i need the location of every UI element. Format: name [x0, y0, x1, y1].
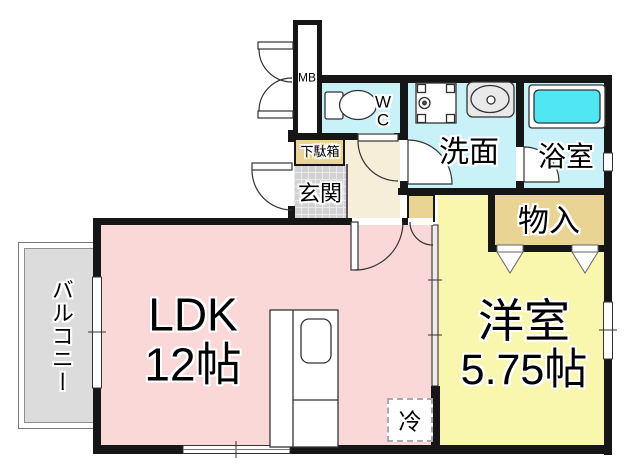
- toilet-label: WC: [374, 94, 392, 131]
- mb-door-leaf-top: [258, 42, 293, 49]
- front-door-leaf: [252, 163, 292, 170]
- bathroom-window: [604, 153, 613, 171]
- small-closet-box: [407, 194, 435, 222]
- ldk-name: LDK: [144, 290, 241, 340]
- refrigerator-label: 冷: [399, 410, 422, 435]
- ldk-size: 12帖: [144, 340, 241, 390]
- meter-box-label: MB: [298, 72, 316, 85]
- western-room-window: [604, 302, 613, 359]
- western-room-size: 5.75帖: [461, 347, 588, 393]
- bathroom-room: [524, 83, 604, 188]
- entrance-label: 玄関: [298, 182, 342, 206]
- mb-door-arc-top: [259, 49, 292, 82]
- kitchen-window: [183, 446, 290, 454]
- balcony-label: バルコニー: [49, 279, 73, 394]
- bathroom-label: 浴室: [538, 142, 594, 172]
- washroom-label: 洗面: [439, 137, 499, 169]
- ldk-label: LDK 12帖: [144, 290, 241, 389]
- hallway-area: [345, 136, 400, 222]
- storage-label: 物入: [518, 204, 580, 237]
- floor-plan: バルコニー LDK 12帖 洋室 5.75帖 下駄箱 玄関 WC 洗面 浴室 物…: [0, 0, 640, 472]
- mb-door-leaf-bottom: [258, 111, 293, 118]
- western-room-name: 洋室: [461, 297, 588, 347]
- shoe-cabinet-label: 下駄箱: [300, 145, 339, 159]
- front-door-arc: [252, 170, 292, 210]
- western-room-label: 洋室 5.75帖: [461, 297, 588, 393]
- mb-door-arc-bottom: [259, 78, 292, 111]
